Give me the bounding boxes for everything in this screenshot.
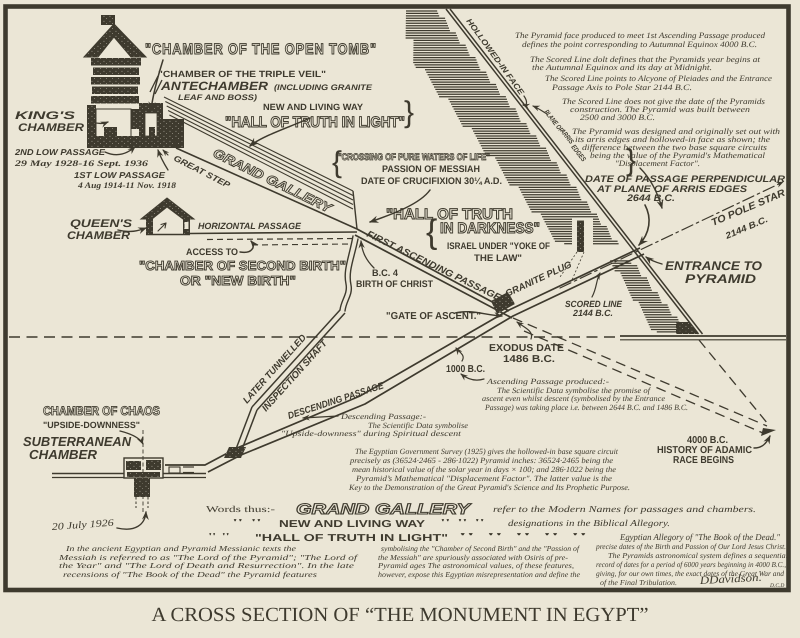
svg-text:the Autumnal Equinox and its d: the Autumnal Equinox and its day at Midn…	[532, 63, 712, 72]
svg-text:precise dates of the Birth and: precise dates of the Birth and Passion o…	[595, 542, 786, 551]
svg-text:mean historical value of the s: mean historical value of the solar year …	[352, 465, 616, 474]
svg-text:"HALL OF TRUTH IN LIGHT": "HALL OF TRUTH IN LIGHT"	[225, 114, 405, 131]
svg-text:ENTRANCE TO: ENTRANCE TO	[665, 259, 762, 273]
svg-text:CHAMBER: CHAMBER	[29, 447, 98, 462]
svg-text:refer to the Modern Names for: refer to the Modern Names for passages a…	[493, 504, 756, 514]
svg-text:PYRAMID: PYRAMID	[685, 272, 756, 286]
svg-text:" ": " "	[208, 531, 231, 541]
svg-text:Egyptian Allegory of "The Book: Egyptian Allegory of "The Book of the De…	[619, 532, 780, 542]
svg-text:" " ": " " "	[440, 517, 486, 527]
svg-text:"HALL OF TRUTH IN LIGHT": "HALL OF TRUTH IN LIGHT"	[255, 533, 448, 544]
svg-text:1000 B.C.: 1000 B.C.	[446, 364, 485, 375]
svg-text:Descending Passage:-: Descending Passage:-	[340, 412, 427, 421]
svg-text:A CROSS SECTION OF “THE MONUME: A CROSS SECTION OF “THE MONUMENT IN EGYP…	[152, 604, 649, 626]
svg-text:}: }	[404, 96, 414, 129]
svg-text:}: }	[626, 144, 636, 177]
svg-text:2ND LOW PASSAGE: 2ND LOW PASSAGE	[14, 147, 105, 157]
svg-text:HORIZONTAL PASSAGE: HORIZONTAL PASSAGE	[198, 221, 302, 231]
svg-text:1ST LOW PASSAGE: 1ST LOW PASSAGE	[74, 170, 165, 180]
svg-text:1486 B.C.: 1486 B.C.	[503, 354, 555, 365]
svg-text:In the ancient Egyptian and Py: In the ancient Egyptian and Pyramid Mess…	[65, 544, 297, 553]
svg-text:THE LAW": THE LAW"	[474, 253, 522, 264]
svg-text:LEAF AND BOSS): LEAF AND BOSS)	[178, 93, 257, 102]
svg-text:GRAND GALLERY: GRAND GALLERY	[296, 501, 473, 518]
svg-text:The Egyptian Government Survey: The Egyptian Government Survey (1925) gi…	[355, 447, 619, 456]
svg-text:ISRAEL UNDER "YOKE OF: ISRAEL UNDER "YOKE OF	[447, 241, 550, 252]
svg-text:BIRTH OF CHRIST: BIRTH OF CHRIST	[356, 279, 433, 290]
svg-text:CHAMBER OF CHAOS: CHAMBER OF CHAOS	[43, 404, 160, 418]
svg-text:NEW AND LIVING WAY: NEW AND LIVING WAY	[263, 102, 363, 112]
svg-text:"CHAMBER OF THE OPEN TOMB": "CHAMBER OF THE OPEN TOMB"	[145, 41, 377, 58]
svg-text:recensions of "The Book of the: recensions of "The Book of the Dead" the…	[63, 570, 317, 579]
svg-text:KING'S: KING'S	[15, 110, 76, 122]
svg-text:Pyramid ages The astronomic: Pyramid ages The astronomical values, of…	[377, 561, 574, 570]
svg-text:symbolising the "Chamber of Se: symbolising the "Chamber of Second Birth…	[381, 544, 580, 553]
svg-text:NEW AND LIVING WAY: NEW AND LIVING WAY	[279, 519, 425, 530]
svg-text:" " " " ": " " " " "	[458, 531, 590, 541]
svg-text:precisely as (36524·2465 - 286: precisely as (36524·2465 - 286·1022) Pyr…	[349, 456, 614, 465]
svg-text:"UPSIDE-DOWNNESS": "UPSIDE-DOWNNESS"	[43, 420, 140, 430]
svg-text:2144 B.C.: 2144 B.C.	[572, 308, 613, 318]
svg-text:CHAMBER: CHAMBER	[18, 122, 84, 134]
svg-text:Key to the Demonstration of th: Key to the Demonstration of the Great Py…	[348, 483, 630, 492]
svg-text:OR "NEW BIRTH": OR "NEW BIRTH"	[180, 273, 296, 288]
svg-text:The Scored Line points to Alcy: The Scored Line points to Alcyone of Ple…	[545, 74, 772, 83]
svg-text:(INCLUDING GRANITE: (INCLUDING GRANITE	[274, 83, 373, 92]
svg-text:DATE OF CRUCIFIXION 30¼ A.D.: DATE OF CRUCIFIXION 30¼ A.D.	[361, 176, 502, 187]
svg-text:D.C.D: D.C.D	[769, 583, 784, 589]
svg-text:"CROSSING OF PURE WATERS OF LI: "CROSSING OF PURE WATERS OF LIFE"	[338, 152, 490, 163]
svg-text:Pyramid’s Mathematical "Displa: Pyramid’s Mathematical "Displacement Fac…	[355, 474, 613, 483]
svg-text:{: {	[426, 213, 437, 251]
svg-text:2644 B.C.: 2644 B.C.	[626, 193, 675, 204]
svg-text:ACCESS TO: ACCESS TO	[186, 247, 238, 258]
svg-text:Passage) was taking place i.e.: Passage) was taking place i.e. between 2…	[484, 403, 688, 412]
svg-text:PASSION OF MESSIAH: PASSION OF MESSIAH	[382, 164, 480, 175]
svg-text:Passage Axis to Pole Star 2144: Passage Axis to Pole Star 2144 B.C.	[551, 83, 692, 92]
svg-text:"CHAMBER OF SECOND BIRTH": "CHAMBER OF SECOND BIRTH"	[139, 258, 346, 273]
svg-text:The Pyramid face produced to m: The Pyramid face produced to meet 1st As…	[515, 31, 766, 40]
svg-text:however, expose this Egyptian: however, expose this Egyptian misreprese…	[378, 570, 581, 579]
svg-text:IN DARKNESS": IN DARKNESS"	[440, 220, 540, 237]
svg-text:Ascending Passage produced:-: Ascending Passage produced:-	[486, 377, 610, 386]
svg-text:B.C. 4: B.C. 4	[372, 268, 399, 279]
svg-text:2500 and 3000 B.C.: 2500 and 3000 B.C.	[580, 113, 655, 122]
svg-text:4 Aug 1914-11 Nov. 1918: 4 Aug 1914-11 Nov. 1918	[77, 180, 177, 190]
svg-text:Words thus:-: Words thus:-	[206, 504, 275, 514]
svg-text:29 May 1928-16 Sept. 1936: 29 May 1928-16 Sept. 1936	[14, 158, 149, 168]
svg-text:designations in the Biblical A: designations in the Biblical Allegory.	[508, 518, 670, 528]
svg-text:The Pyramids astronomical syst: The Pyramids astronomical system defines…	[608, 551, 788, 560]
svg-text:RACE BEGINS: RACE BEGINS	[673, 455, 734, 466]
svg-text:defines the point correspondin: defines the point corresponding to Autum…	[522, 40, 757, 49]
svg-text:EXODUS DATE: EXODUS DATE	[489, 343, 564, 354]
svg-text:record of dates for a period o: record of dates for a period of 6000 yea…	[596, 560, 786, 569]
svg-text:CHAMBER: CHAMBER	[67, 230, 130, 242]
svg-text:ANTECHAMBER: ANTECHAMBER	[160, 79, 269, 93]
svg-text:of the Final Tribulation.: of the Final Tribulation.	[600, 578, 677, 587]
svg-text:" ": " "	[232, 517, 263, 527]
svg-text:the Year" and "The Lord of Dea: the Year" and "The Lord of Death and Res…	[59, 561, 355, 570]
svg-text:"CHAMBER OF THE TRIPLE VEIL": "CHAMBER OF THE TRIPLE VEIL"	[158, 69, 326, 79]
svg-text:{: {	[332, 146, 342, 179]
svg-text:QUEEN'S: QUEEN'S	[70, 218, 133, 230]
svg-text:"GATE OF ASCENT.": "GATE OF ASCENT."	[386, 311, 481, 322]
svg-text:"Upside-downness" during Spiri: "Upside-downness" during Spiritual desce…	[281, 429, 462, 438]
svg-text:ascent even whilst descent (sy: ascent even whilst descent (symbolised b…	[482, 394, 665, 403]
